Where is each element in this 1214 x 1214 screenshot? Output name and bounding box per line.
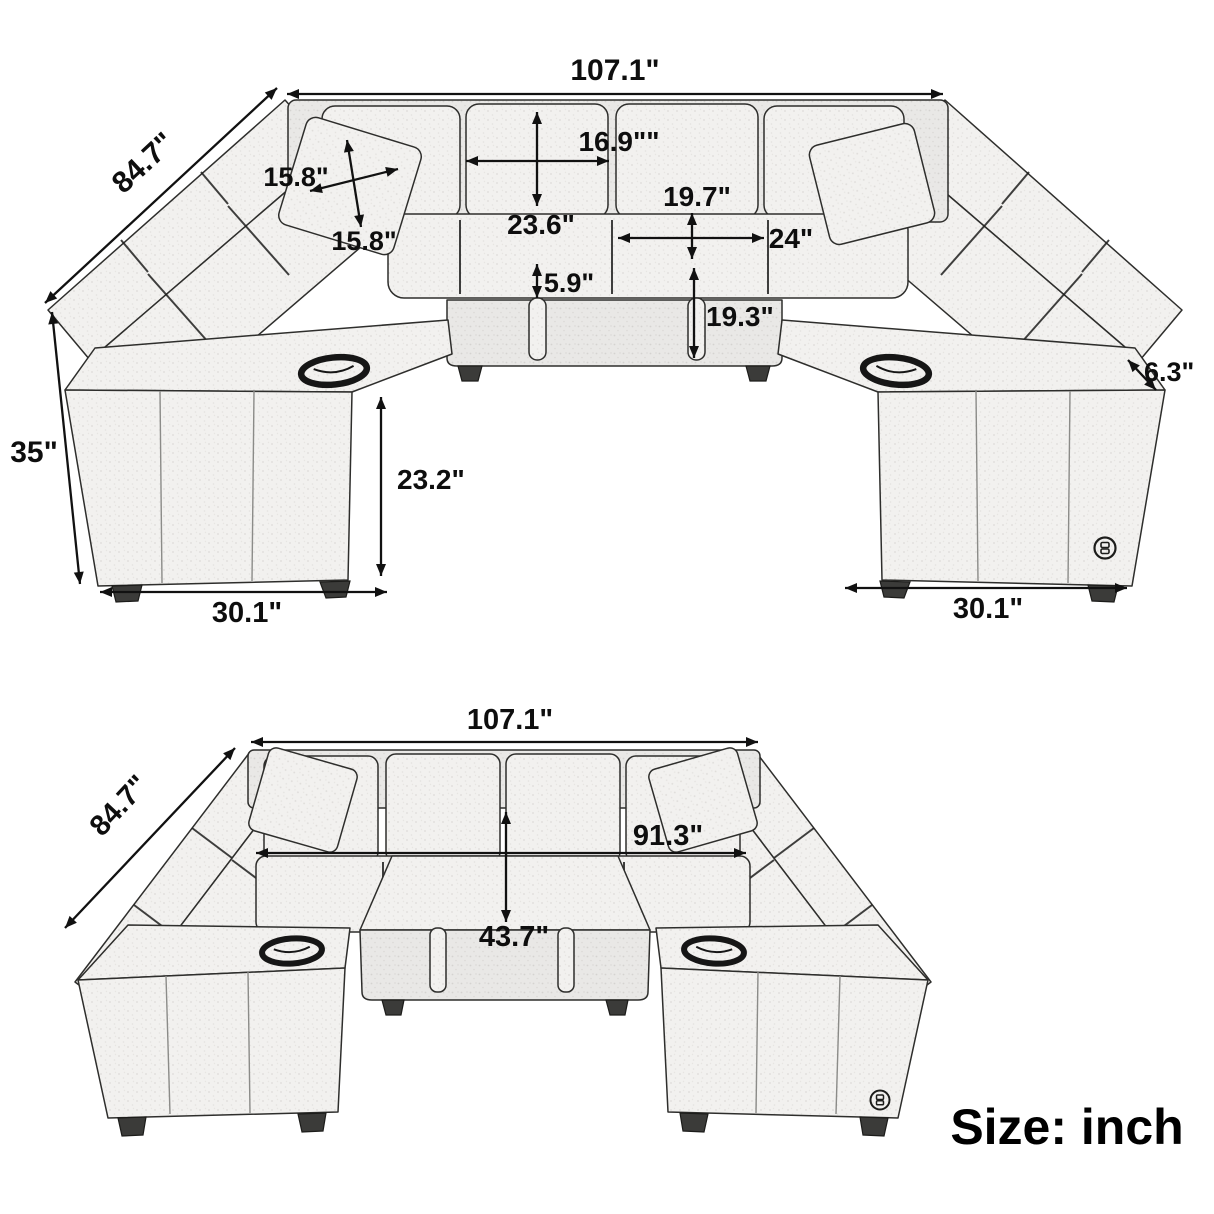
ottoman-strap-handle: [558, 928, 574, 992]
dim-overall-width-front: 107.1": [287, 54, 943, 94]
dimension-diagram-canvas: 107.1" 84.7" 35" 15.8" 15.8" 16.9"" 23.6…: [0, 0, 1214, 1214]
units-note: Size: inch: [950, 1099, 1183, 1155]
dim-label-seat-width: 24": [769, 223, 813, 254]
back-cushion: [506, 754, 620, 862]
sofa-foot: [298, 1113, 326, 1132]
dim-label-pillow-width: 15.8": [263, 162, 328, 192]
usb-port-icon: [1095, 538, 1116, 559]
sofa-foot: [112, 585, 142, 602]
dim-label-ottoman-height: 19.3": [706, 301, 774, 332]
dim-label-armrest-height: 23.2": [397, 464, 465, 495]
dim-label-overall-width-top: 107.1": [467, 704, 553, 736]
dim-label-seat-cushion-thickness: 5.9": [544, 268, 594, 298]
front-view-diagram: 107.1" 84.7" 35" 15.8" 15.8" 16.9"" 23.6…: [10, 54, 1194, 629]
dim-label-backrest-height: 23.6": [507, 209, 575, 240]
dim-label-interior-width: 91.3": [633, 820, 703, 852]
ottoman-strap-handle: [430, 928, 446, 992]
cup-holder-icon: [261, 936, 323, 965]
sofa-foot: [606, 1000, 628, 1015]
sofa-right-armrest: [778, 320, 1165, 602]
sofa-foot: [382, 1000, 404, 1015]
sofa-foot: [320, 581, 350, 598]
top-view-diagram: 107.1" 84.7" 91.3" 43.7": [65, 704, 931, 1136]
dim-label-interior-depth: 43.7": [479, 921, 549, 953]
dim-overall-width-top: 107.1": [251, 704, 758, 742]
sofa-left-armrest: [65, 320, 452, 602]
ottoman-strap-handle: [688, 298, 705, 360]
dim-label-seat-depth: 19.7": [663, 181, 731, 212]
back-cushion: [386, 754, 500, 862]
sofa-dimension-sheet: 107.1" 84.7" 35" 15.8" 15.8" 16.9"" 23.6…: [0, 0, 1214, 1214]
dim-label-back-cushion-width: 16.9"": [578, 126, 659, 157]
dim-label-pillow-height: 15.8": [331, 226, 396, 256]
dim-label-overall-height: 35": [10, 436, 58, 469]
dim-label-overall-depth-top: 84.7": [84, 769, 155, 842]
sofa-foot: [458, 366, 482, 381]
dim-overall-height: 35": [10, 312, 80, 584]
dim-label-overall-depth: 84.7": [106, 126, 182, 200]
dim-seat-cushion-thickness: 5.9": [537, 264, 594, 298]
dim-label-left-arm-depth: 30.1": [212, 597, 282, 629]
ottoman-strap-handle: [529, 298, 546, 360]
dim-label-armrest-width: 6.3": [1144, 357, 1194, 387]
sofa-left-armrest: [78, 925, 350, 1136]
sofa-foot: [746, 366, 770, 381]
dim-label-right-arm-depth: 30.1": [953, 593, 1023, 625]
dim-armrest-height: 23.2": [381, 397, 465, 576]
dim-label-overall-width: 107.1": [570, 54, 659, 87]
sofa-foot: [118, 1117, 146, 1136]
usb-port-icon: [871, 1091, 890, 1110]
